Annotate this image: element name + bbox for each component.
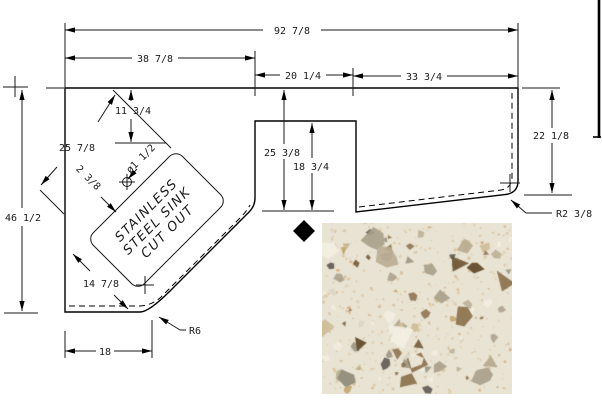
dim-right-depth: 22 1/8 (533, 131, 569, 142)
crosshair-sink-corner (136, 276, 154, 294)
finished-edge-dashed-right (359, 93, 512, 207)
dim-faucet-hole-dia: ø1 1/2 (125, 143, 158, 176)
dim-sink-back-offset: 11 3/4 (115, 106, 151, 117)
dim-sink-length: 25 7/8 (59, 143, 95, 154)
dim-right-section-width: 33 3/4 (406, 72, 442, 83)
dim-range-opening-width: 20 1/4 (285, 71, 321, 82)
faucet-hole-symbol (119, 174, 135, 190)
crosshair-top-left (3, 76, 28, 97)
dim-right-corner-radius: R2 3/8 (556, 209, 592, 220)
material-sample-swatch (322, 223, 512, 394)
dim-faucet-hole-offset: 2 3/8 (73, 164, 102, 193)
sample-marker-diamond-icon (293, 220, 315, 242)
dim-sink-width: 14 7/8 (83, 279, 119, 290)
sink-edge-extension-line (113, 90, 171, 148)
dim-left-section-width: 38 7/8 (137, 54, 173, 65)
sink-cutout-label: STAINLESS STEEL SINK CUT OUT (110, 174, 205, 269)
dim-front-corner-radius: R6 (189, 326, 201, 337)
dim-left-depth: 46 1/2 (5, 213, 41, 224)
leader-front-corner-radius: R6 (159, 317, 201, 337)
dim-overall-width: 92 7/8 (274, 26, 310, 37)
countertop-drawing-sheet: STAINLESS STEEL SINK CUT OUT 92 7/8 (0, 0, 602, 408)
dim-bottom-width: 18 (99, 347, 111, 358)
dim-mid-depth: 25 3/8 (264, 148, 300, 159)
leader-right-corner-radius: R2 3/8 (511, 200, 592, 220)
dim-range-opening-depth: 18 3/4 (293, 162, 329, 173)
